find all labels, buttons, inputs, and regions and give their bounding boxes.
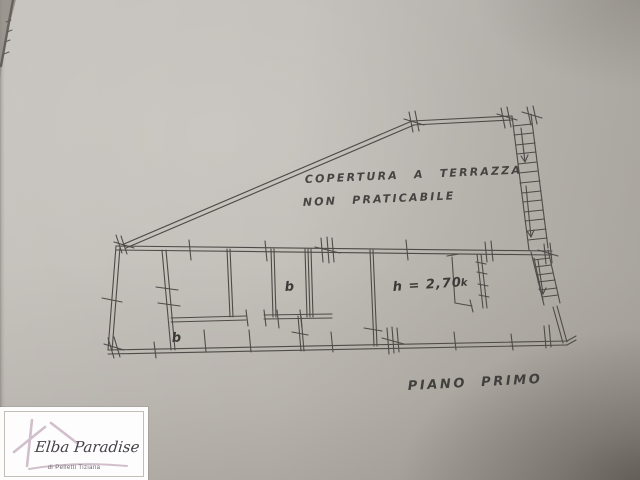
room-label-bath-main: b [284, 279, 294, 295]
floor-title: PIANO PRIMO [407, 372, 542, 394]
terrace-note-line1: COPERTURA A TERRAZZA [305, 164, 523, 186]
paper-edge-top-left [0, 0, 16, 80]
agency-name: Elba Paradise [34, 438, 148, 456]
ceiling-height-label: h = 2,70 [392, 275, 462, 295]
terrace-note-line2: NON PRATICABILE [303, 189, 456, 209]
agency-logo-border: Elba Paradise di Pelletti Tiziana [4, 411, 144, 477]
interior-walls [162, 249, 377, 351]
agency-logo-card: Elba Paradise di Pelletti Tiziana [0, 407, 148, 480]
floor-plan-photo: COPERTURA A TERRAZZA NON PRATICABILE h =… [0, 0, 640, 480]
staircase-upper [512, 114, 548, 250]
room-label-kitchen: k [460, 277, 469, 289]
agency-tagline: di Pelletti Tiziana [5, 465, 143, 471]
room-label-bath-small: b [171, 331, 181, 346]
